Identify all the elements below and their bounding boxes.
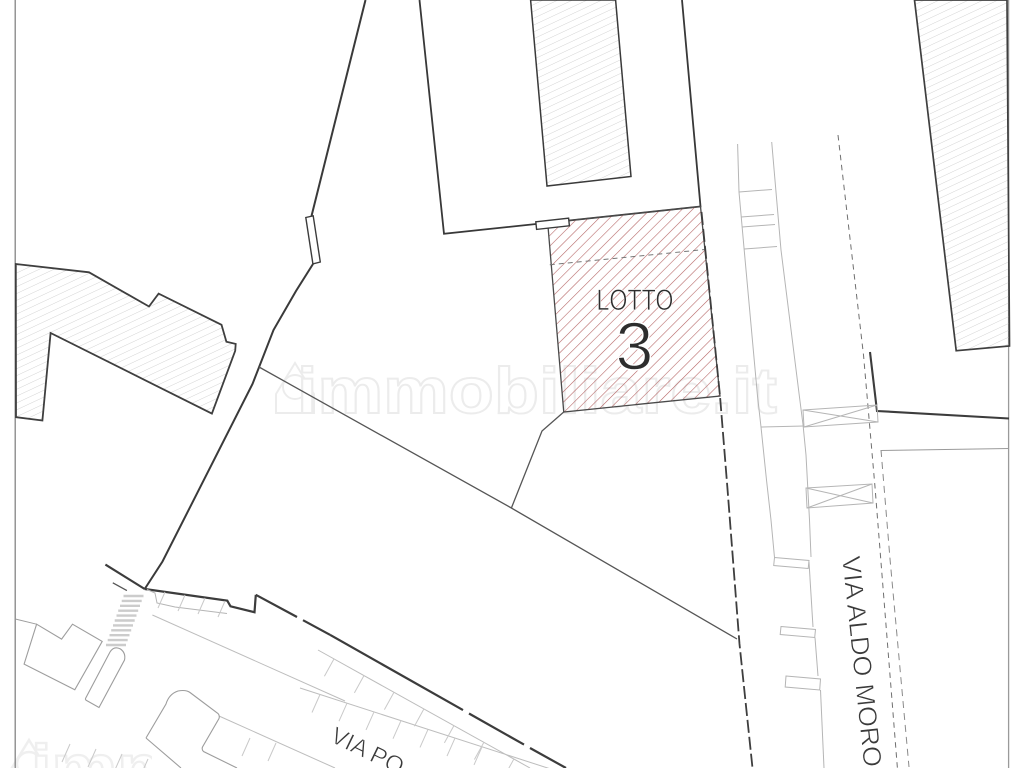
svg-text:3: 3 [616,309,654,385]
